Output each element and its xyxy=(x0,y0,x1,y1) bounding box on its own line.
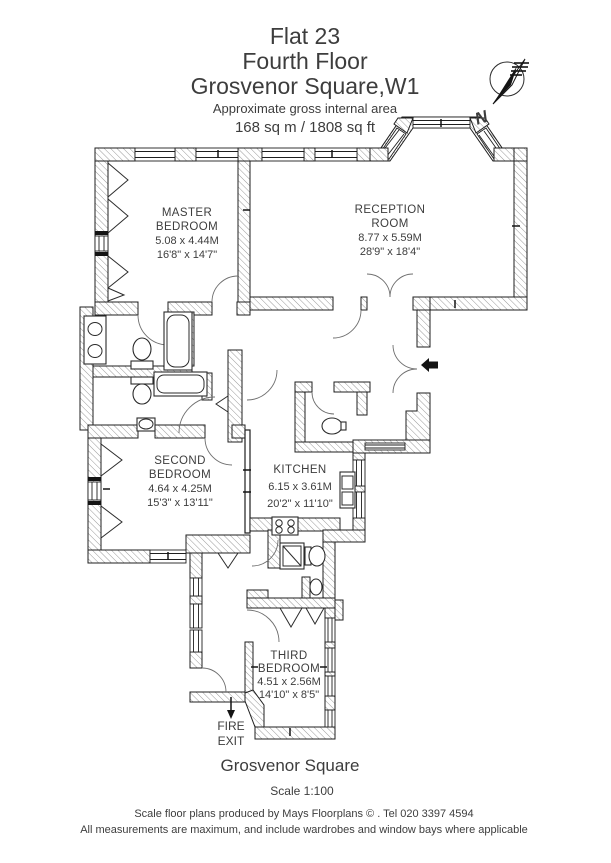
wardrobe-door-icon xyxy=(101,444,122,476)
wall xyxy=(175,148,196,161)
bay-window xyxy=(370,117,514,161)
wardrobe-door-icon xyxy=(108,288,124,301)
door-arc xyxy=(393,369,417,393)
wall xyxy=(357,392,367,415)
wardrobe-door-icon xyxy=(280,608,302,627)
svg-text:EXIT: EXIT xyxy=(218,734,245,748)
wall xyxy=(335,600,343,620)
window xyxy=(325,710,335,727)
wall xyxy=(247,598,335,608)
wall xyxy=(406,393,430,440)
wall xyxy=(88,550,150,563)
wall xyxy=(190,596,202,604)
second-bedroom-label: SECOND BEDROOM 4.64 x 4.25M 15'3" x 13'1… xyxy=(147,455,213,509)
kitchen-sink-fixture xyxy=(340,472,355,508)
footer-disclaimer: All measurements are maximum, and includ… xyxy=(80,824,528,836)
wall xyxy=(95,302,138,315)
svg-text:14'10" x 8'5": 14'10" x 8'5" xyxy=(259,689,319,701)
toilet-fixture xyxy=(131,377,153,404)
wall xyxy=(325,608,335,618)
window xyxy=(190,604,202,628)
wardrobe-door-icon xyxy=(108,199,128,233)
kitchen-label: KITCHEN 6.15 x 3.61M 20'2" x 11'10" xyxy=(267,464,333,510)
wall xyxy=(268,530,280,568)
bathtub-fixture xyxy=(154,372,207,396)
wall xyxy=(361,297,367,310)
svg-text:8.77 x 5.59M: 8.77 x 5.59M xyxy=(358,232,422,244)
window xyxy=(190,578,202,596)
wall xyxy=(325,672,335,676)
page-title-line3: Grosvenor Square,W1 xyxy=(191,73,420,99)
window xyxy=(95,231,108,256)
wall xyxy=(238,161,250,302)
window xyxy=(262,148,304,161)
fire-exit-door-arc xyxy=(202,668,226,692)
window xyxy=(365,443,405,450)
window xyxy=(135,148,175,161)
door-arc xyxy=(333,310,361,338)
floorplan-page: N Flat 23 Fourth Floor Grosvenor Square,… xyxy=(0,0,611,863)
wall xyxy=(186,535,250,553)
wall xyxy=(353,453,365,460)
wall xyxy=(295,382,312,392)
window xyxy=(196,148,238,161)
svg-text:4.51 x 2.56M: 4.51 x 2.56M xyxy=(257,676,321,688)
svg-text:BEDROOM: BEDROOM xyxy=(258,663,320,675)
door-arc xyxy=(247,370,277,400)
svg-text:RECEPTION: RECEPTION xyxy=(355,204,426,216)
twin-basin-fixture xyxy=(84,316,106,364)
wall xyxy=(250,297,333,310)
basin-fixture xyxy=(310,579,322,595)
window xyxy=(325,618,335,642)
room-labels: MASTER BEDROOM 5.08 x 4.44M 16'8" x 14'7… xyxy=(147,204,425,748)
svg-text:MASTER: MASTER xyxy=(162,207,212,219)
wardrobe-door-icon xyxy=(108,163,128,197)
toilet-fixture xyxy=(305,546,325,566)
reception-room-label: RECEPTION ROOM 8.77 x 5.59M 28'9" x 18'4… xyxy=(355,204,426,258)
fire-exit-label: FIRE EXIT xyxy=(217,719,245,748)
wardrobe-door-icon xyxy=(306,608,324,624)
door-arc xyxy=(312,392,334,414)
wall xyxy=(304,148,315,161)
wall xyxy=(232,425,245,438)
window xyxy=(325,676,335,696)
basin-fixture xyxy=(322,418,346,434)
entrance-arrow-icon xyxy=(421,358,438,372)
cupboard-door-icon xyxy=(216,396,228,412)
header: Flat 23 Fourth Floor Grosvenor Square,W1… xyxy=(191,23,420,136)
door-arc xyxy=(247,610,279,642)
basin-fixture xyxy=(137,418,155,431)
door-arc xyxy=(390,274,413,297)
wall xyxy=(190,652,202,668)
door-arc xyxy=(393,345,417,369)
wall xyxy=(190,692,245,702)
door-leaf-icon xyxy=(218,553,238,568)
svg-text:16'8" x 14'7": 16'8" x 14'7" xyxy=(157,249,217,261)
page-title-line2: Fourth Floor xyxy=(242,48,368,74)
area-value: 168 sq m / 1808 sq ft xyxy=(235,119,376,136)
window xyxy=(315,148,357,161)
bathtub-fixture xyxy=(164,312,192,370)
wall xyxy=(413,297,430,310)
wall xyxy=(255,727,335,739)
page-title-line1: Flat 23 xyxy=(270,23,340,49)
wall xyxy=(190,553,202,578)
wall xyxy=(88,425,138,438)
footer-credit: Scale floor plans produced by Mays Floor… xyxy=(134,808,473,820)
wall xyxy=(325,642,335,648)
svg-text:20'2" x 11'10": 20'2" x 11'10" xyxy=(267,498,333,510)
svg-text:4.64 x 4.25M: 4.64 x 4.25M xyxy=(148,483,212,495)
wall xyxy=(155,425,205,438)
footer: Grosvenor Square Scale 1:100 Scale floor… xyxy=(80,756,528,836)
wall xyxy=(430,297,527,310)
wall xyxy=(417,310,430,347)
wall xyxy=(334,382,370,392)
svg-text:BEDROOM: BEDROOM xyxy=(156,221,218,233)
shower-fixture xyxy=(280,543,304,569)
wall xyxy=(302,577,310,600)
third-bedroom-label: THIRD BEDROOM 4.51 x 2.56M 14'10" x 8'5" xyxy=(257,650,321,701)
svg-text:BEDROOM: BEDROOM xyxy=(149,469,211,481)
svg-text:15'3" x 13'11": 15'3" x 13'11" xyxy=(147,497,213,509)
floor-plan-canvas: N Flat 23 Fourth Floor Grosvenor Square,… xyxy=(0,0,611,863)
svg-text:5.08 x 4.44M: 5.08 x 4.44M xyxy=(155,235,219,247)
footer-location: Grosvenor Square xyxy=(221,756,360,775)
svg-text:28'9" x 18'4": 28'9" x 18'4" xyxy=(360,246,420,258)
wall xyxy=(238,148,262,161)
svg-text:ROOM: ROOM xyxy=(371,218,408,230)
thin-wall xyxy=(245,430,250,533)
hob-fixture xyxy=(272,517,298,535)
window xyxy=(325,648,335,672)
window xyxy=(190,630,202,652)
wall xyxy=(295,392,305,442)
wall xyxy=(323,530,365,542)
area-subtitle: Approximate gross internal area xyxy=(213,101,398,116)
wall xyxy=(237,302,250,315)
wall xyxy=(325,696,335,710)
master-bedroom-label: MASTER BEDROOM 5.08 x 4.44M 16'8" x 14'7… xyxy=(155,207,219,261)
wardrobe-door-icon xyxy=(108,256,128,288)
wardrobe-door-icon xyxy=(101,506,122,538)
compass-north-icon: N xyxy=(473,59,529,129)
wall xyxy=(323,542,335,600)
svg-text:FIRE: FIRE xyxy=(217,719,244,733)
door-arc xyxy=(212,276,238,302)
svg-text:SECOND: SECOND xyxy=(154,455,206,467)
wall xyxy=(514,161,527,297)
svg-text:KITCHEN: KITCHEN xyxy=(273,464,326,476)
svg-text:6.15 x 3.61M: 6.15 x 3.61M xyxy=(268,481,332,493)
wall xyxy=(95,148,135,161)
door-arc xyxy=(367,274,390,297)
footer-scale: Scale 1:100 xyxy=(270,784,334,798)
svg-text:THIRD: THIRD xyxy=(270,650,307,662)
toilet-fixture xyxy=(131,338,153,369)
